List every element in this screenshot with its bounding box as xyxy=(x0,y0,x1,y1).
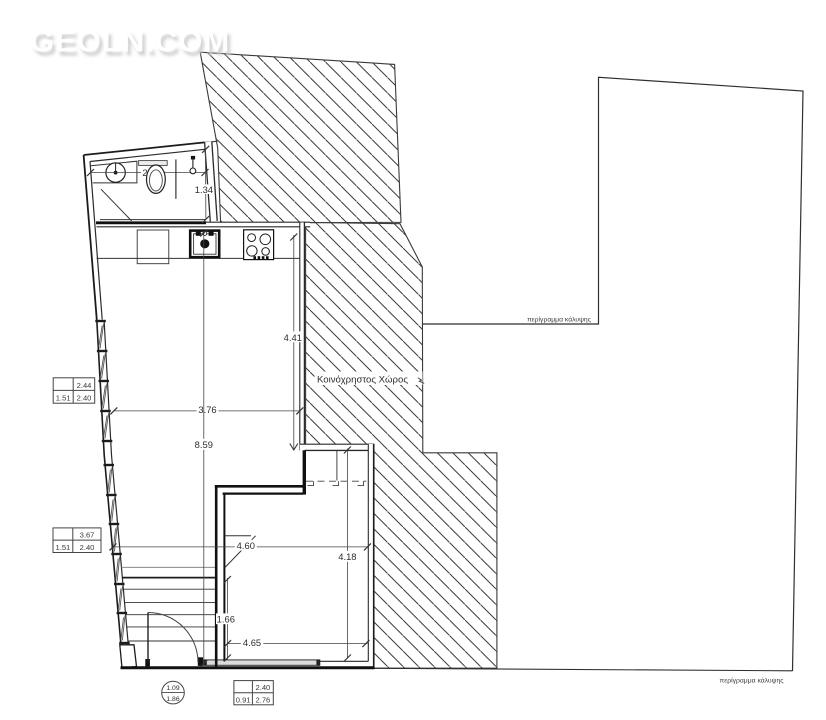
svg-text:Κοινόχρηστος Χώρος: Κοινόχρηστος Χώρος xyxy=(317,374,408,385)
svg-text:1.66: 1.66 xyxy=(217,614,235,625)
svg-text:1.51: 1.51 xyxy=(56,543,71,552)
svg-text:2.44: 2.44 xyxy=(77,381,92,390)
svg-text:4.60: 4.60 xyxy=(237,540,255,551)
svg-text:8.59: 8.59 xyxy=(195,439,213,450)
svg-text:4.41: 4.41 xyxy=(284,332,302,343)
svg-text:3.76: 3.76 xyxy=(198,404,216,415)
svg-text:1.51: 1.51 xyxy=(56,394,71,403)
svg-text:3.67: 3.67 xyxy=(80,531,95,540)
svg-text:0.91: 0.91 xyxy=(236,695,251,704)
svg-text:4.65: 4.65 xyxy=(243,637,261,648)
svg-text:περίγραμμα κάλυψης: περίγραμμα κάλυψης xyxy=(527,316,592,324)
svg-text:2.40: 2.40 xyxy=(77,394,92,403)
svg-text:1.09: 1.09 xyxy=(166,685,179,692)
svg-text:1.34: 1.34 xyxy=(195,184,213,195)
svg-text:4.18: 4.18 xyxy=(338,551,356,562)
svg-text:2.40: 2.40 xyxy=(80,543,95,552)
svg-text:GEOLN.COM: GEOLN.COM xyxy=(30,24,230,59)
svg-text:1.86: 1.86 xyxy=(166,696,179,703)
svg-text:περίγραμμα κάλυψης: περίγραμμα κάλυψης xyxy=(720,677,785,685)
svg-text:2.40: 2.40 xyxy=(256,683,271,692)
svg-text:2.76: 2.76 xyxy=(256,695,271,704)
